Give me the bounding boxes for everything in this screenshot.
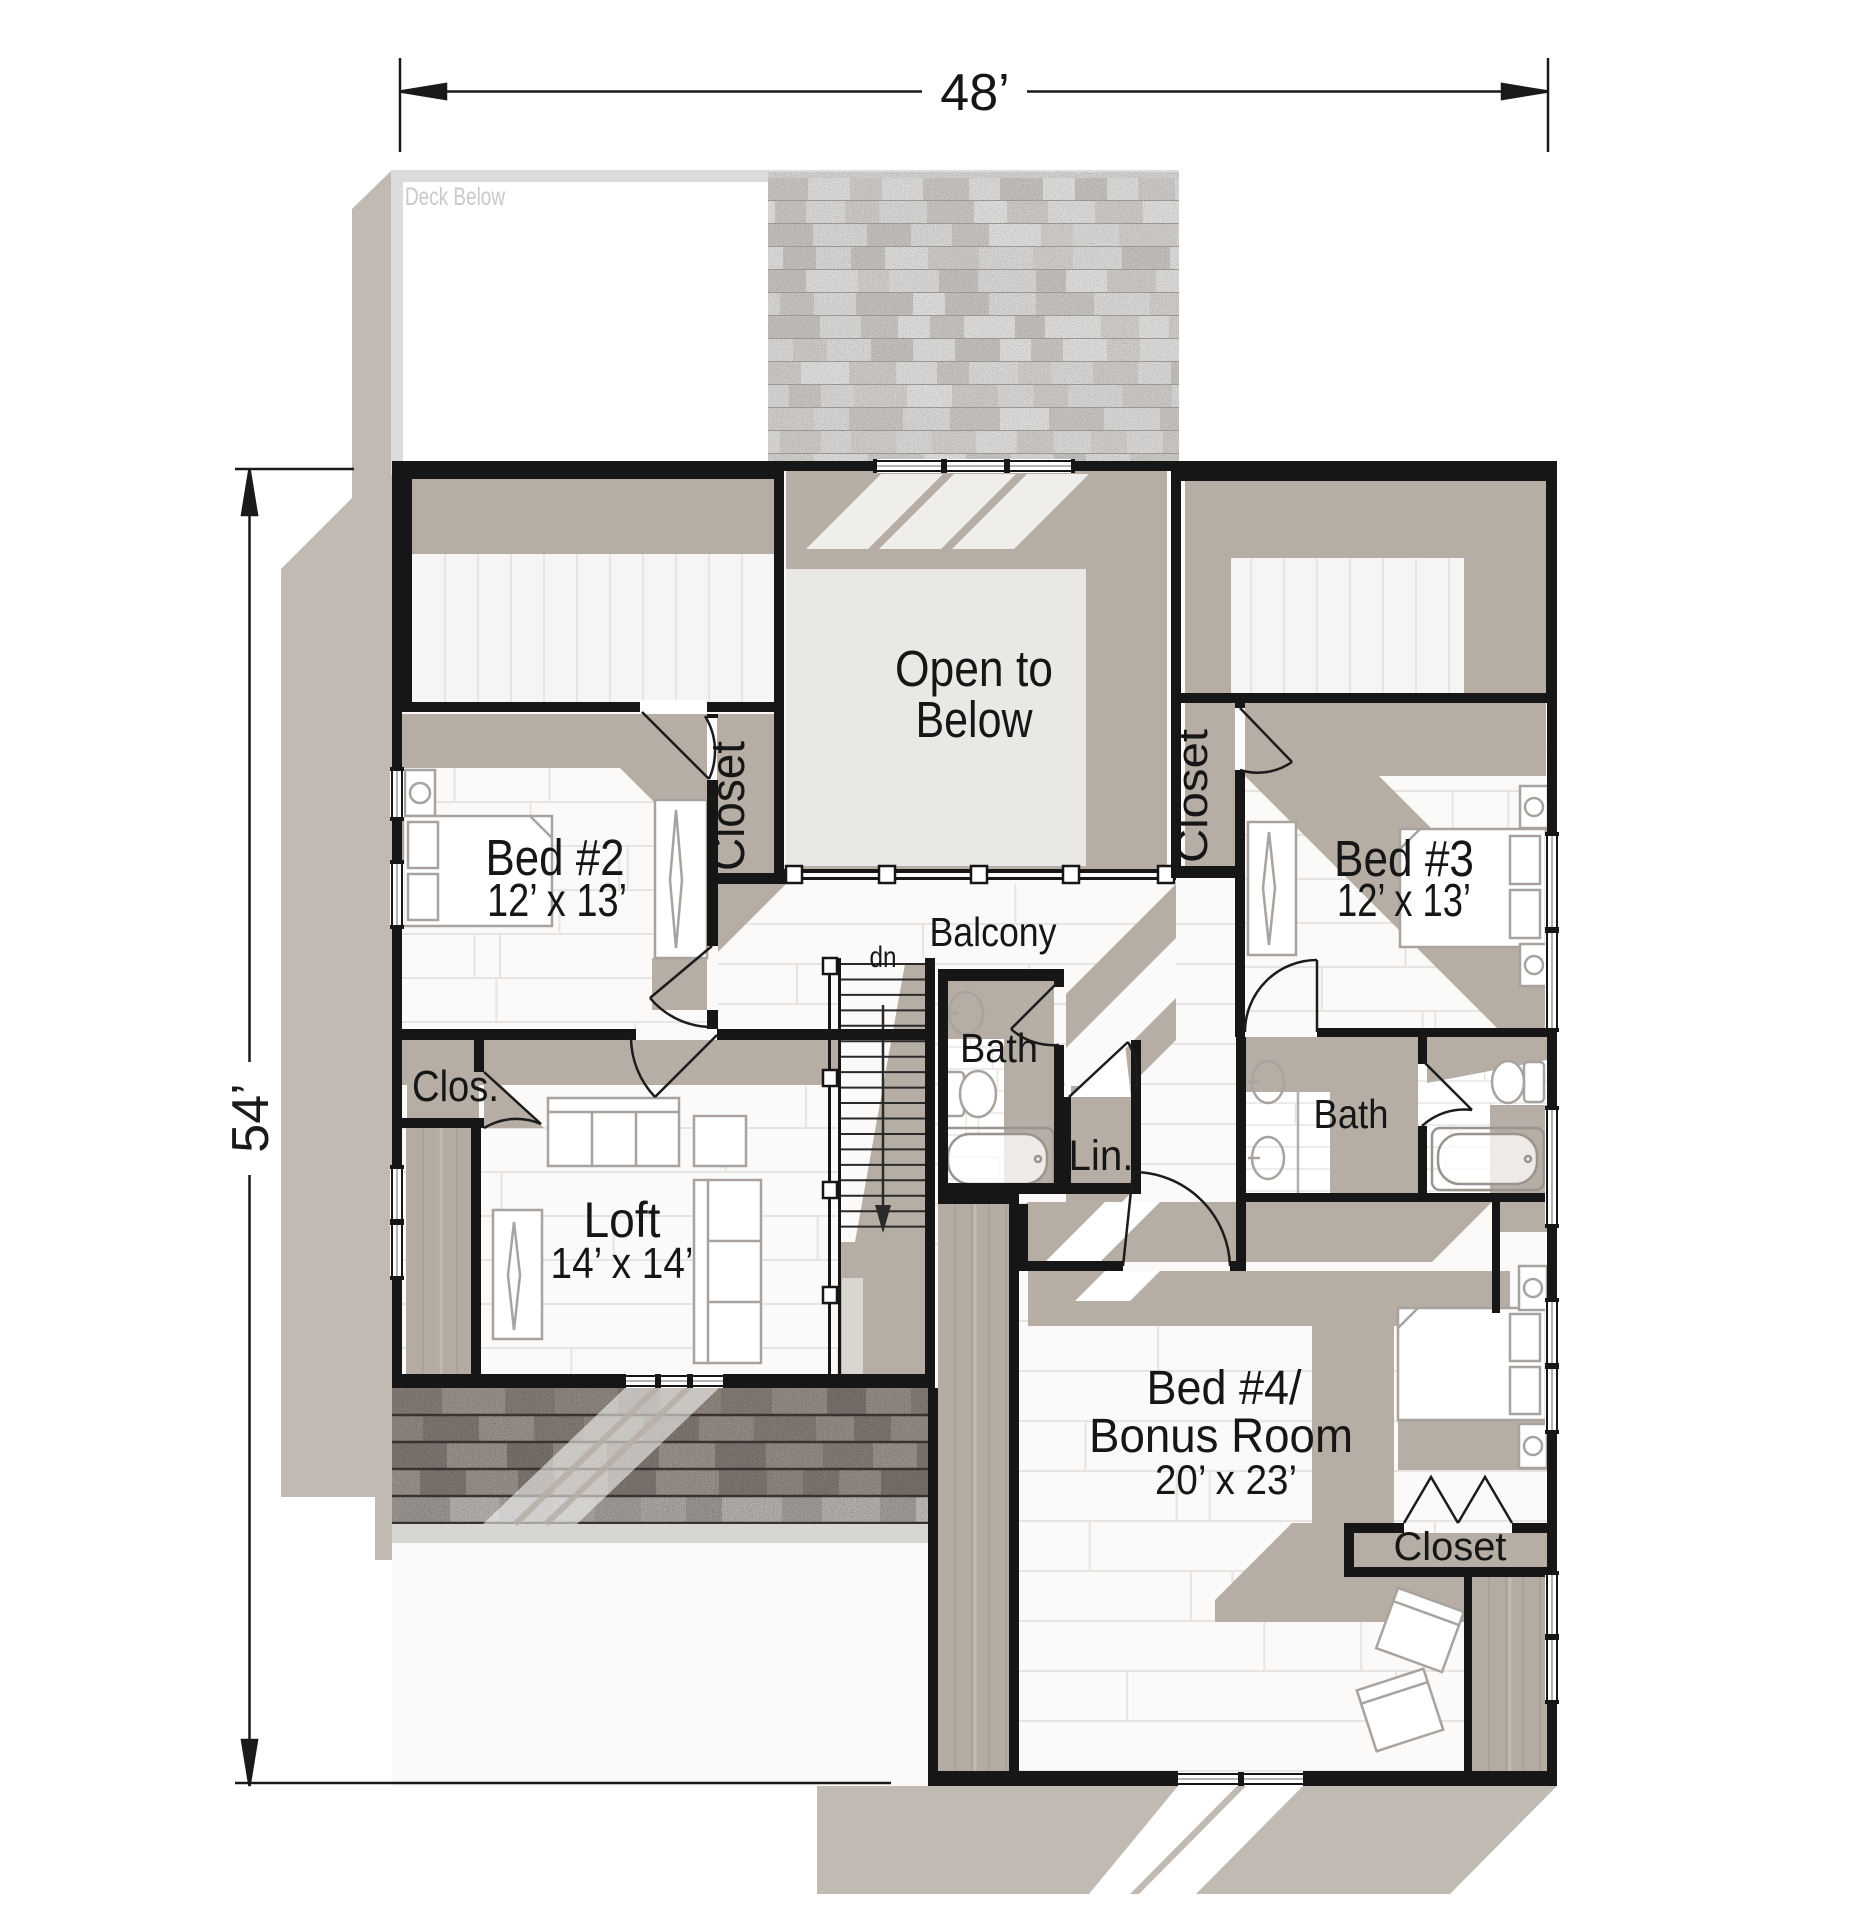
svg-text:Open to: Open to	[895, 640, 1053, 697]
svg-text:Bath: Bath	[960, 1025, 1038, 1071]
svg-text:Below: Below	[916, 691, 1033, 748]
svg-text:Balcony: Balcony	[930, 909, 1057, 955]
svg-text:12’ x 13’: 12’ x 13’	[487, 874, 627, 926]
svg-text:Closet: Closet	[702, 741, 755, 871]
svg-text:20’ x 23’: 20’ x 23’	[1155, 1456, 1297, 1503]
svg-text:12’ x 13’: 12’ x 13’	[1337, 874, 1471, 926]
svg-text:dn: dn	[870, 941, 897, 974]
svg-text:Clos.: Clos.	[412, 1062, 499, 1111]
svg-text:Lin.: Lin.	[1069, 1132, 1134, 1180]
svg-text:Closet: Closet	[1168, 729, 1217, 863]
svg-text:Closet: Closet	[1394, 1525, 1507, 1569]
svg-text:Deck Below: Deck Below	[405, 183, 506, 211]
svg-text:54’: 54’	[222, 1083, 280, 1152]
svg-text:Bed #4/: Bed #4/	[1147, 1362, 1303, 1415]
svg-text:14’ x 14’: 14’ x 14’	[551, 1239, 694, 1288]
svg-text:Bath: Bath	[1314, 1091, 1389, 1137]
svg-text:48’: 48’	[940, 64, 1009, 122]
